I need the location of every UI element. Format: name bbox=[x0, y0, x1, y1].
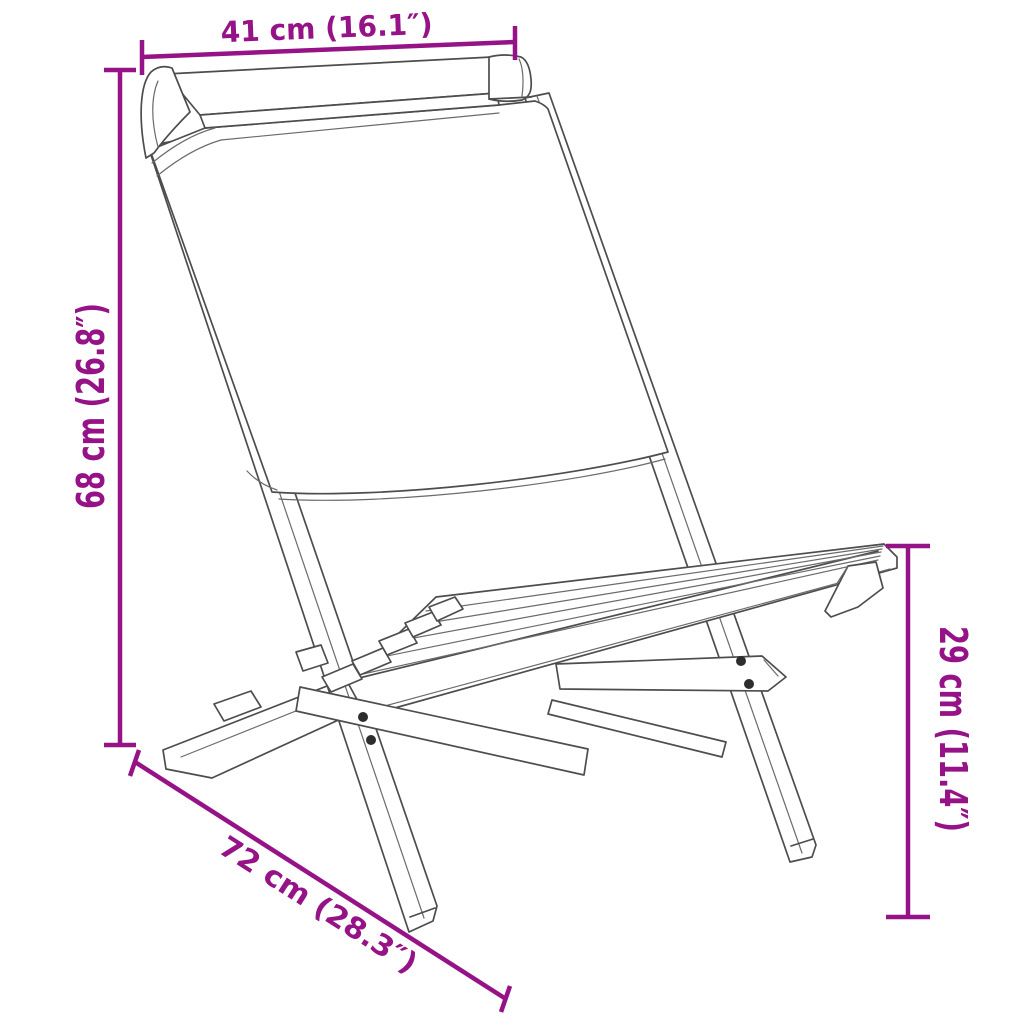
dimension-seat-height: 29 cm (11.4″) bbox=[886, 546, 975, 917]
dimension-diagram: 41 cm (16.1″) 68 cm (26.8″) 29 cm (11.4″… bbox=[0, 0, 1024, 1024]
top-width-label: 41 cm (16.1″) bbox=[220, 7, 433, 49]
dimension-back-height: 68 cm (26.8″) bbox=[69, 70, 136, 745]
dimension-depth: 72 cm (28.3″) bbox=[130, 750, 510, 1012]
back-height-label: 68 cm (26.8″) bbox=[69, 303, 113, 509]
diagram-canvas: 41 cm (16.1″) 68 cm (26.8″) 29 cm (11.4″… bbox=[0, 0, 1024, 1024]
seat-height-label: 29 cm (11.4″) bbox=[931, 626, 975, 832]
chair-fabric-back bbox=[150, 101, 668, 500]
folding-chair-line-art bbox=[141, 55, 897, 932]
